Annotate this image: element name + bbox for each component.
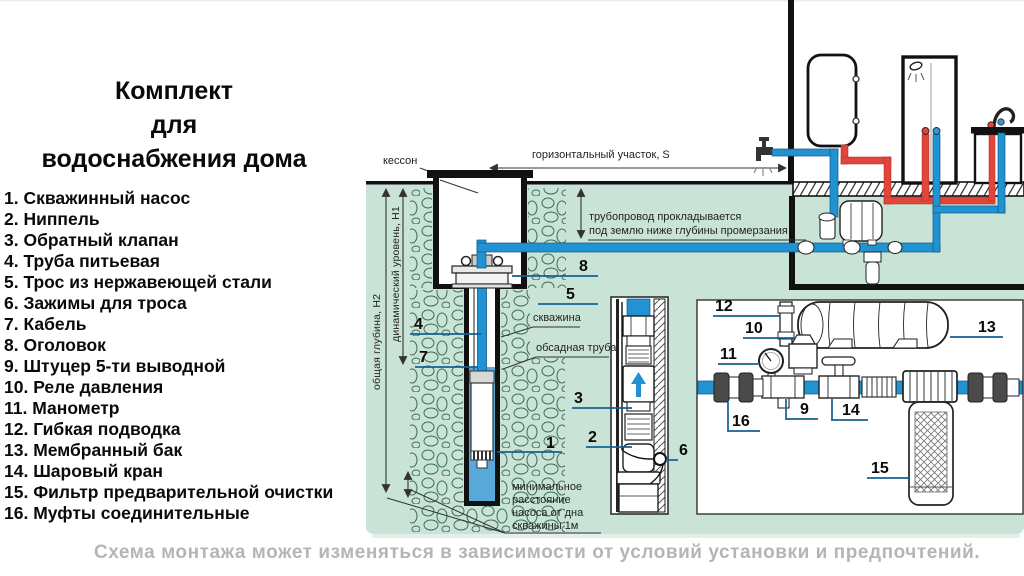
legend-item: 1. Скважинный насос: [4, 188, 364, 209]
callout-1: 1: [546, 436, 555, 452]
union-corrugated: [862, 377, 896, 397]
kitchen-sink: [971, 109, 1024, 183]
label-total-depth: общая глубина, Н2: [371, 294, 385, 390]
callout-7: 7: [419, 350, 428, 366]
legend-list: 1. Скважинный насос 2. Ниппель 3. Обратн…: [4, 188, 364, 524]
label-borehole: скважина: [533, 312, 581, 326]
callout-3: 3: [574, 391, 583, 407]
callout-4: 4: [414, 317, 423, 333]
callout-6: 6: [679, 443, 688, 459]
well: [464, 284, 500, 506]
outdoor-tap-icon: [754, 137, 773, 176]
membrane-tank: [798, 302, 948, 348]
pressure-relay: [789, 335, 817, 374]
infographic-root: Комплект для водоснабжения дома 1. Скваж…: [0, 0, 1024, 576]
callout-16: 16: [732, 414, 750, 430]
label-horizontal-section: горизонтальный участок, S: [532, 149, 670, 163]
top-edge-line: [0, 0, 1024, 2]
casing-left: [464, 286, 469, 506]
equipment-box-bottom: [789, 284, 1024, 290]
drop-pipe: [478, 284, 487, 373]
legend-item: 7. Кабель: [4, 314, 364, 335]
callout-11: 11: [720, 347, 737, 363]
surface-line-right: [523, 181, 793, 185]
legend-item: 4. Труба питьевая: [4, 251, 364, 272]
pre-filter: [903, 371, 957, 505]
legend-item: 16. Муфты соединительные: [4, 503, 364, 524]
nipple: [625, 414, 652, 440]
surface-line-left: [366, 181, 437, 185]
shower-cold-valve: [933, 128, 940, 135]
house-wall: [788, 0, 794, 184]
legend-item: 2. Ниппель: [4, 209, 364, 230]
cable-clamp: [654, 453, 666, 465]
legend-item: 10. Реле давления: [4, 377, 364, 398]
shower-hot-valve: [922, 128, 929, 135]
footer-note: Схема монтажа может изменяться в зависим…: [94, 542, 980, 564]
label-casing-pipe: обсадная труба: [536, 342, 616, 356]
callout-13: 13: [978, 320, 996, 336]
legend-item: 8. Оголовок: [4, 335, 364, 356]
callout-14: 14: [842, 403, 860, 419]
legend-item: 5. Трос из нержавеющей стали: [4, 272, 364, 293]
callout-12: 12: [715, 299, 733, 315]
page-title: Комплект для водоснабжения дома: [0, 74, 348, 176]
legend-item: 13. Мембранный бак: [4, 440, 364, 461]
legend-item: 3. Обратный клапан: [4, 230, 364, 251]
callout-9: 9: [800, 402, 809, 418]
shower-cabin: [903, 57, 956, 183]
label-min-distance: минимальное расстояние насоса от дна скв…: [512, 481, 583, 533]
legend-item: 15. Фильтр предварительной очистки: [4, 482, 364, 503]
callout-8: 8: [579, 259, 588, 275]
callout-10: 10: [745, 321, 763, 337]
callout-2: 2: [588, 430, 597, 446]
casing-bottom: [464, 501, 500, 506]
label-caisson: кессон: [383, 155, 417, 169]
legend-item: 9. Штуцер 5-ти выводной: [4, 356, 364, 377]
callout-15: 15: [871, 461, 889, 477]
flexible-hose: [778, 302, 794, 346]
water-heater: [808, 55, 856, 146]
label-dynamic-level: динамический уровень, Н1: [390, 206, 404, 342]
label-pipeline-note: трубопровод прокладывается под землю ниж…: [589, 211, 788, 238]
legend-item: 11. Манометр: [4, 398, 364, 419]
callout-5: 5: [566, 287, 575, 303]
borehole-pump: [470, 371, 494, 468]
legend-item: 12. Гибкая подводка: [4, 419, 364, 440]
casing-right: [495, 286, 500, 506]
legend-item: 6. Зажимы для троса: [4, 293, 364, 314]
legend-item: 14. Шаровый кран: [4, 461, 364, 482]
pump-top-inset-panel: [611, 297, 668, 514]
ball-valve: [819, 357, 859, 398]
